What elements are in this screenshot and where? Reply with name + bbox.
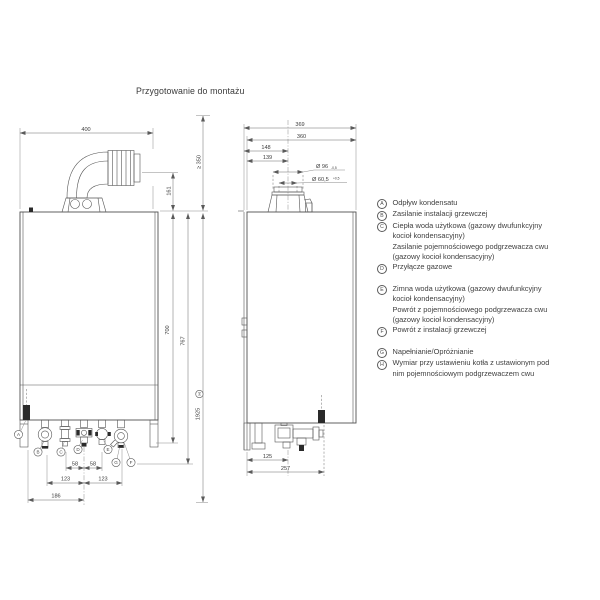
- legend-text: (gazowy kocioł kondensacyjny): [393, 315, 600, 325]
- fitting-cold-water: [95, 420, 111, 445]
- svg-text:125: 125: [263, 454, 272, 460]
- svg-text:-0,5: -0,5: [331, 166, 337, 170]
- svg-text:+0,5: +0,5: [333, 177, 340, 181]
- svg-text:369: 369: [295, 122, 304, 128]
- legend-text: Zasilanie instalacji grzewczej: [393, 209, 600, 219]
- condensate-siphon: [23, 389, 30, 420]
- legend-text: Przyłącze gazowe: [393, 262, 600, 272]
- legend-text: kocioł kondensacyjny): [393, 294, 600, 304]
- legend-letter-badge: H: [377, 360, 387, 370]
- svg-text:700: 700: [165, 325, 171, 334]
- legend-text: Powrót z pojemnościowego podgrzewacza cw…: [393, 305, 600, 315]
- legend-text: kocioł kondensacyjny): [393, 231, 600, 241]
- legend-item-g: G Napełnianie/Opróżnianie: [377, 347, 600, 358]
- legend-letter-badge: B: [377, 211, 387, 221]
- callout-d: D: [74, 445, 82, 453]
- fitting-dhw: [60, 420, 70, 446]
- front-view-drawing: A B C D E G F: [14, 116, 210, 506]
- siphon-side: [318, 395, 325, 423]
- legend-text: Zasilanie pojemnościowego podgrzewacza c…: [393, 242, 600, 252]
- svg-text:≥ 350: ≥ 350: [196, 155, 202, 169]
- boiler-body-front: [20, 208, 158, 421]
- svg-text:E: E: [106, 447, 109, 452]
- svg-text:58: 58: [90, 462, 96, 468]
- svg-text:161: 161: [166, 186, 172, 195]
- fitting-heating-return: [111, 420, 128, 448]
- svg-text:186: 186: [51, 494, 60, 500]
- svg-text:F: F: [130, 460, 133, 465]
- legend-item-h: H Wymiar przy ustawieniu kotła z ustawio…: [377, 358, 600, 379]
- legend-text: Zimna woda użytkowa (gazowy dwufunkcyjny: [393, 284, 600, 294]
- svg-text:Ø 60,5: Ø 60,5: [312, 177, 329, 183]
- svg-text:G: G: [114, 460, 118, 465]
- callout-a: A: [14, 430, 22, 438]
- legend-letter-badge: A: [377, 199, 387, 209]
- legend-letter-badge: E: [377, 285, 387, 295]
- callout-e: E: [104, 445, 112, 453]
- svg-text:Ø 96: Ø 96: [316, 164, 328, 170]
- svg-text:H: H: [197, 392, 202, 395]
- svg-text:148: 148: [261, 145, 270, 151]
- legend-text: nim pojemnościowym podgrzewaczem cwu: [393, 369, 600, 379]
- callout-f: F: [127, 458, 135, 466]
- svg-text:1925: 1925: [195, 408, 201, 420]
- legend-text: Powrót z instalacji grzewczej: [393, 325, 600, 335]
- callout-g: G: [112, 458, 120, 466]
- flue-collar-side: [268, 187, 312, 212]
- callout-b: B: [34, 448, 42, 456]
- legend: A Odpływ kondensatu B Zasilanie instalac…: [377, 198, 600, 379]
- svg-text:B: B: [36, 450, 39, 455]
- legend-text: Wymiar przy ustawieniu kotła z ustawiony…: [393, 358, 600, 368]
- svg-text:360: 360: [297, 134, 306, 140]
- legend-letter-badge: G: [377, 348, 387, 358]
- svg-text:123: 123: [61, 477, 70, 483]
- svg-text:139: 139: [263, 155, 272, 161]
- fitting-gas: [76, 420, 92, 447]
- boiler-body-side: [238, 211, 356, 450]
- side-view-drawing: 369 360 148 139 Ø 96 -0,5 Ø 60,5 +0,5: [238, 120, 356, 476]
- legend-item-d: D Przyłącze gazowe: [377, 262, 600, 273]
- legend-letter-badge: D: [377, 264, 387, 274]
- legend-item-c: C Ciepła woda użytkowa (gazowy dwufunkcy…: [377, 221, 600, 263]
- legend-item-e: E Zimna woda użytkowa (gazowy dwufunkcyj…: [377, 284, 600, 326]
- fitting-heating-flow: [38, 420, 52, 449]
- legend-letter-badge: F: [377, 327, 387, 337]
- legend-text: Odpływ kondensatu: [393, 198, 600, 208]
- legend-text: Napełnianie/Opróżnianie: [393, 347, 600, 357]
- svg-text:58: 58: [72, 462, 78, 468]
- front-view-dimensions: 400 ≥ 350 161 700 767 1925 H: [20, 116, 210, 506]
- legend-text: (gazowy kocioł kondensacyjny): [393, 252, 600, 262]
- legend-item-b: B Zasilanie instalacji grzewczej: [377, 209, 600, 220]
- svg-text:400: 400: [81, 127, 90, 133]
- legend-item-a: A Odpływ kondensatu: [377, 198, 600, 209]
- svg-text:123: 123: [98, 477, 107, 483]
- callout-c: C: [57, 448, 65, 456]
- svg-text:767: 767: [180, 336, 186, 345]
- svg-text:257: 257: [281, 466, 290, 472]
- side-fittings: [252, 423, 323, 451]
- legend-text: Ciepła woda użytkowa (gazowy dwufunkcyjn…: [393, 221, 600, 231]
- legend-letter-badge: C: [377, 222, 387, 232]
- legend-item-f: F Powrót z instalacji grzewczej: [377, 325, 600, 336]
- flue-elbow: [62, 151, 140, 213]
